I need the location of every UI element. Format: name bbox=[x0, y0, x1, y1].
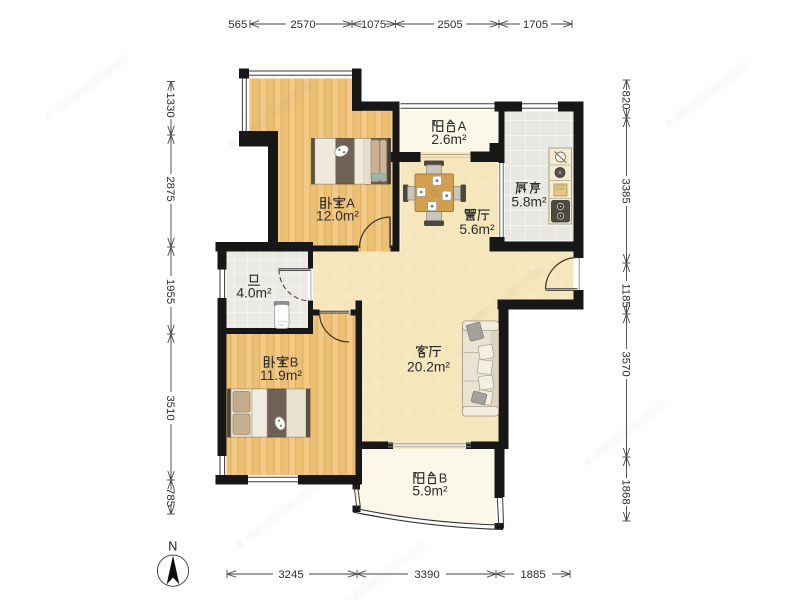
svg-text:1330: 1330 bbox=[164, 92, 176, 117]
svg-text:2.6m²: 2.6m² bbox=[431, 132, 467, 147]
svg-text:785: 785 bbox=[164, 488, 176, 507]
svg-text:5.8m²: 5.8m² bbox=[511, 195, 547, 210]
svg-text:3385: 3385 bbox=[620, 178, 632, 203]
svg-text:1955: 1955 bbox=[164, 279, 176, 304]
svg-text:4.0m²: 4.0m² bbox=[236, 286, 272, 301]
svg-text:2505: 2505 bbox=[437, 19, 462, 31]
svg-text:3570: 3570 bbox=[620, 351, 632, 376]
svg-text:3245: 3245 bbox=[278, 569, 303, 581]
svg-text:2875: 2875 bbox=[164, 176, 176, 201]
svg-text:1185: 1185 bbox=[620, 283, 632, 308]
svg-text:N: N bbox=[168, 540, 177, 554]
svg-text:5.6m²: 5.6m² bbox=[459, 222, 495, 237]
svg-text:820: 820 bbox=[620, 90, 632, 109]
svg-text:3390: 3390 bbox=[414, 569, 439, 581]
svg-text:1075: 1075 bbox=[361, 19, 386, 31]
svg-text:2570: 2570 bbox=[290, 19, 315, 31]
svg-text:565: 565 bbox=[228, 19, 247, 31]
svg-text:20.2m²: 20.2m² bbox=[407, 360, 450, 375]
svg-text:3510: 3510 bbox=[164, 395, 176, 420]
svg-text:5.9m²: 5.9m² bbox=[412, 484, 448, 499]
svg-text:11.9m²: 11.9m² bbox=[260, 368, 302, 383]
svg-text:12.0m²: 12.0m² bbox=[316, 209, 359, 224]
svg-text:1705: 1705 bbox=[523, 19, 548, 31]
svg-text:1885: 1885 bbox=[520, 569, 545, 581]
svg-text:1868: 1868 bbox=[620, 479, 632, 504]
